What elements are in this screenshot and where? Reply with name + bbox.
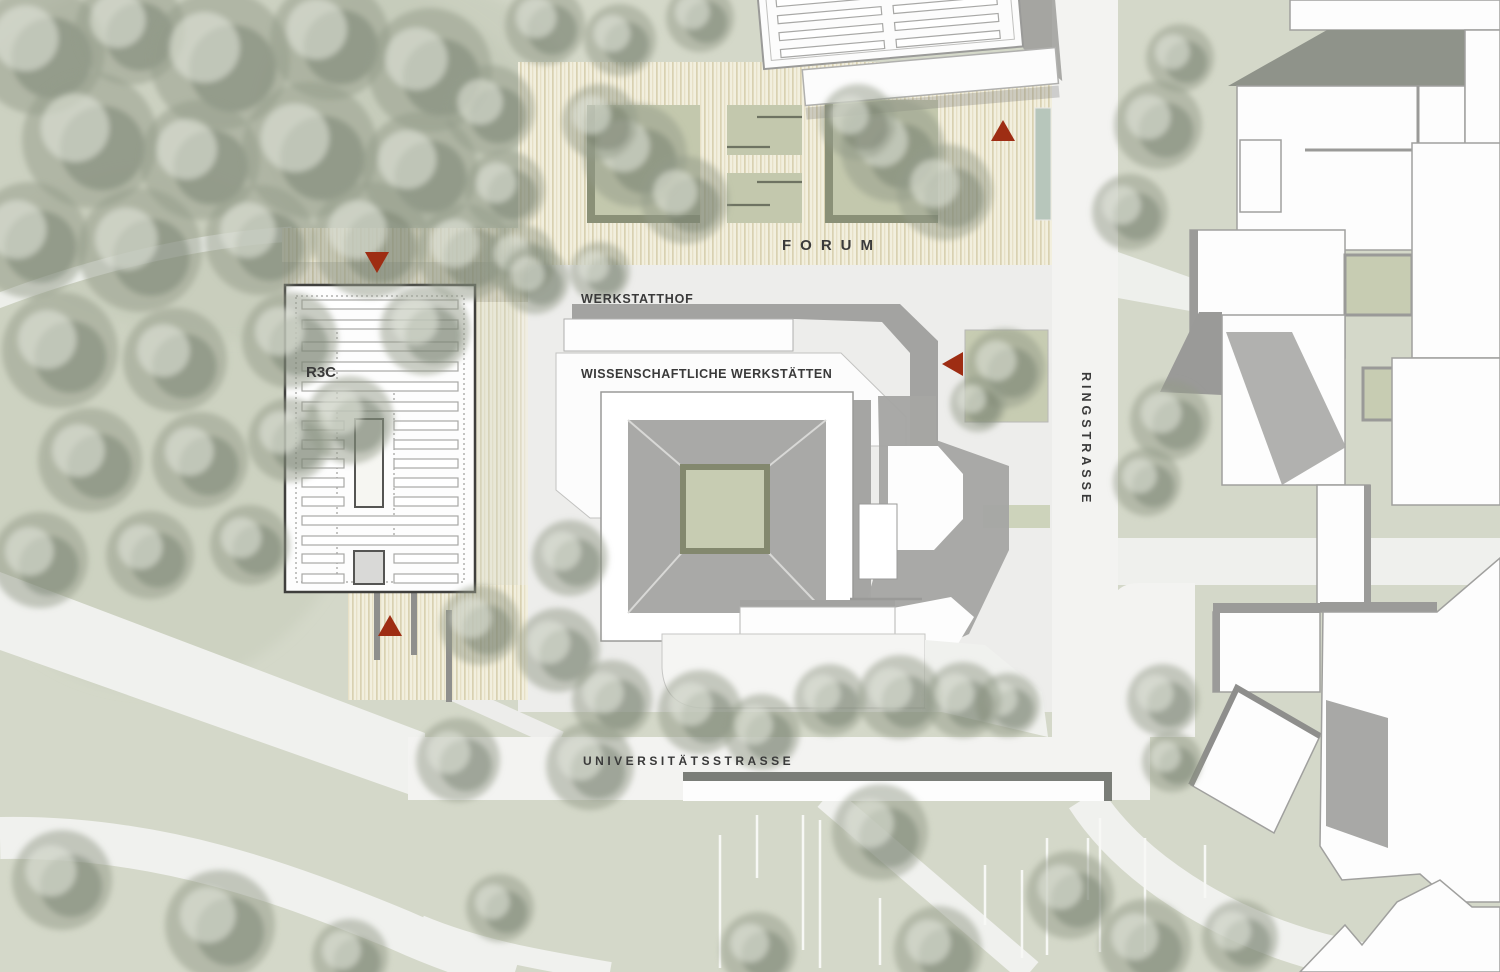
tree — [380, 285, 470, 375]
tree — [440, 585, 520, 665]
label-r3c: R3C — [306, 364, 336, 381]
tree — [641, 156, 729, 244]
label-wissenschaftliche-werkstaetten: WISSENSCHAFTLICHE WERKSTÄTTEN — [581, 366, 832, 381]
label-universitaetsstrasse: UNIVERSITÄTSSTRASSE — [583, 753, 794, 768]
water-feature — [1035, 108, 1051, 220]
tree — [445, 65, 535, 155]
tree — [584, 4, 656, 76]
tree — [152, 412, 248, 508]
label-forum: FORUM — [782, 237, 882, 254]
tree — [501, 246, 569, 314]
label-werkstatthof: WERKSTATTHOF — [581, 292, 694, 306]
tree — [465, 150, 545, 230]
label-ringstrasse: RINGSTRASSE — [1079, 372, 1093, 506]
tree — [1113, 448, 1181, 516]
tree — [1130, 380, 1210, 460]
tree — [1127, 664, 1199, 736]
site-plan-page: FORUM WERKSTATTHOF WISSENSCHAFTLICHE WER… — [0, 0, 1500, 972]
tree — [832, 784, 928, 880]
tree — [532, 520, 608, 596]
tree — [925, 662, 1001, 738]
tree — [123, 308, 227, 412]
tree — [897, 144, 993, 240]
courtyard-green — [1345, 255, 1412, 315]
werkstatthof-bar — [564, 319, 793, 351]
tree — [205, 185, 315, 295]
inner-courtyard-green — [686, 470, 764, 548]
garden-bed-south — [727, 173, 802, 223]
tree — [1026, 851, 1114, 939]
tree — [1092, 174, 1168, 250]
tree — [1142, 732, 1202, 792]
tree — [312, 182, 428, 298]
east-path — [1118, 538, 1500, 585]
tree — [950, 376, 1006, 432]
tree — [12, 830, 112, 930]
tree — [210, 505, 290, 585]
campus-site-plan: FORUM WERKSTATTHOF WISSENSCHAFTLICHE WER… — [0, 0, 1500, 972]
r3c-shaft — [354, 551, 384, 584]
tree — [78, 188, 202, 312]
east-tower — [859, 504, 897, 579]
tree — [1146, 24, 1214, 92]
tree — [794, 664, 866, 736]
tree — [466, 874, 534, 942]
tree — [106, 511, 194, 599]
tree — [416, 718, 500, 802]
tree — [562, 84, 638, 160]
tree — [306, 376, 394, 464]
tree — [1114, 81, 1202, 169]
tree — [38, 408, 142, 512]
tree — [2, 292, 118, 408]
tree — [820, 84, 896, 160]
